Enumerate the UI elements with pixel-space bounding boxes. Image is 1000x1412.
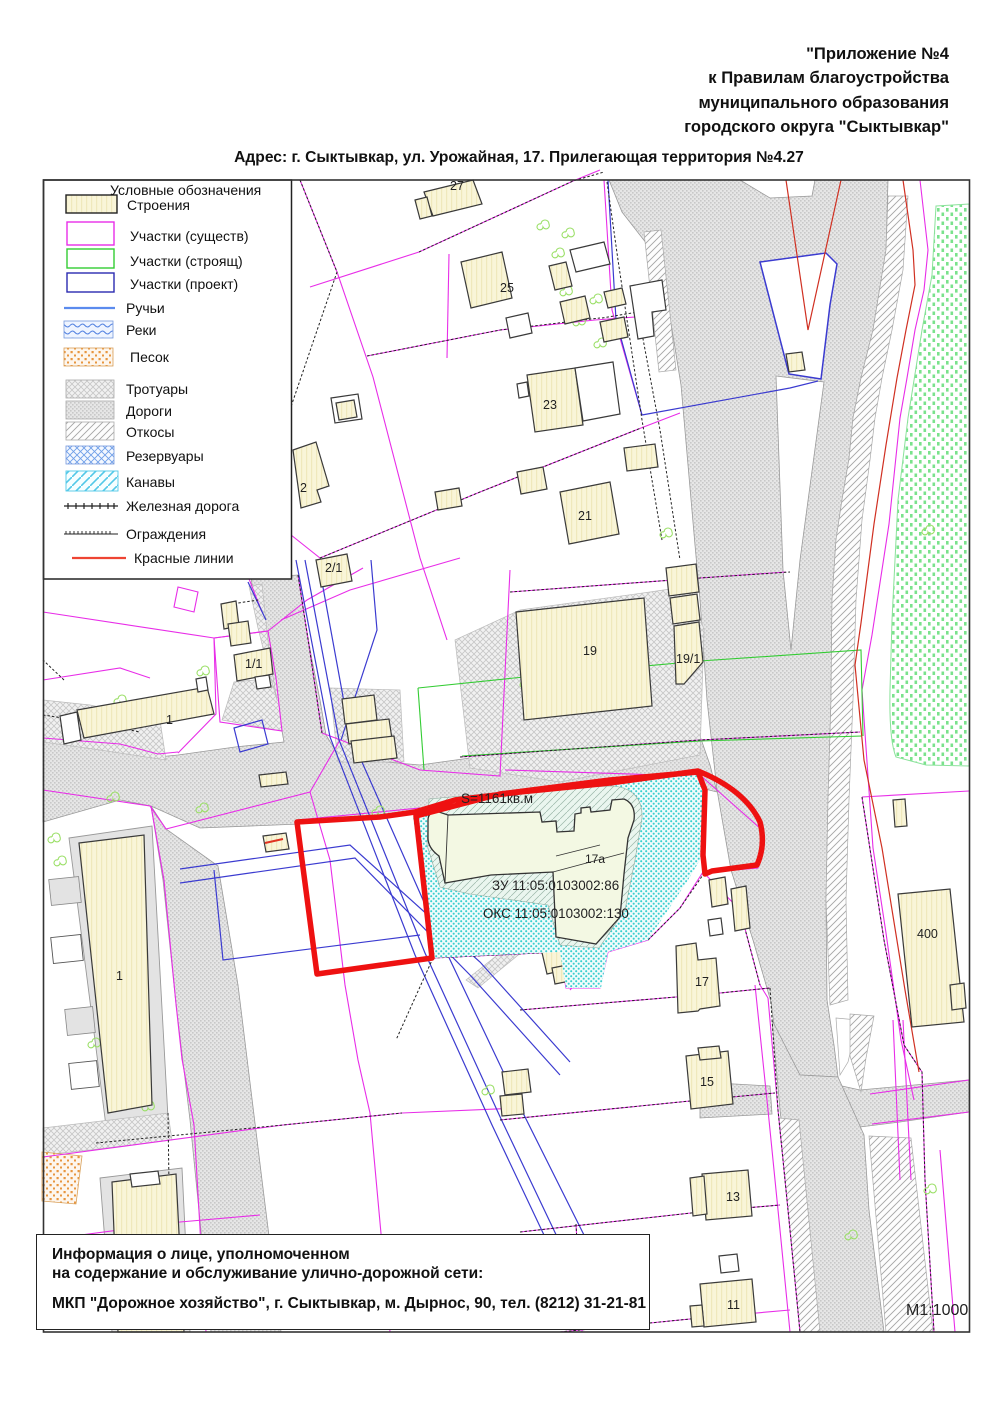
svg-text:17: 17 xyxy=(695,975,709,989)
svg-text:ОКС 11:05:0103002:130: ОКС 11:05:0103002:130 xyxy=(483,906,629,921)
svg-text:Строения: Строения xyxy=(127,197,190,213)
svg-text:Канавы: Канавы xyxy=(126,474,175,490)
svg-text:2/1: 2/1 xyxy=(325,561,342,575)
svg-text:М1:1000: М1:1000 xyxy=(906,1302,968,1319)
svg-text:Ограждения: Ограждения xyxy=(126,526,206,542)
svg-text:Участки (существ): Участки (существ) xyxy=(130,228,249,244)
svg-text:Откосы: Откосы xyxy=(126,424,174,440)
svg-text:Дороги: Дороги xyxy=(126,403,172,419)
svg-text:1: 1 xyxy=(166,713,173,727)
svg-text:Железная дорога: Железная дорога xyxy=(126,498,239,514)
svg-text:19: 19 xyxy=(583,644,597,658)
svg-text:15: 15 xyxy=(700,1075,714,1089)
svg-text:19/1: 19/1 xyxy=(676,652,700,666)
svg-text:13: 13 xyxy=(726,1190,740,1204)
svg-text:Песок: Песок xyxy=(130,349,170,365)
svg-text:2: 2 xyxy=(300,481,307,495)
svg-text:23: 23 xyxy=(543,398,557,412)
svg-text:21: 21 xyxy=(578,509,592,523)
svg-text:Ручьи: Ручьи xyxy=(126,300,165,316)
svg-text:Тротуары: Тротуары xyxy=(126,381,188,397)
svg-text:Реки: Реки xyxy=(126,322,156,338)
svg-text:1: 1 xyxy=(116,969,123,983)
svg-text:400: 400 xyxy=(917,927,938,941)
svg-text:S=1161кв.м: S=1161кв.м xyxy=(461,791,533,806)
svg-text:ЗУ 11:05:0103002:86: ЗУ 11:05:0103002:86 xyxy=(492,878,619,893)
svg-text:1/1: 1/1 xyxy=(245,657,262,671)
svg-text:25: 25 xyxy=(500,281,514,295)
svg-text:Условные обозначения: Условные обозначения xyxy=(110,182,261,198)
svg-text:27: 27 xyxy=(450,179,464,193)
svg-text:11: 11 xyxy=(727,1298,740,1312)
svg-text:17а: 17а xyxy=(585,852,605,866)
svg-text:Резервуары: Резервуары xyxy=(126,448,204,464)
svg-text:Участки (строящ): Участки (строящ) xyxy=(130,253,243,269)
svg-text:Участки (проект): Участки (проект) xyxy=(130,276,238,292)
svg-text:Красные линии: Красные линии xyxy=(134,550,234,566)
